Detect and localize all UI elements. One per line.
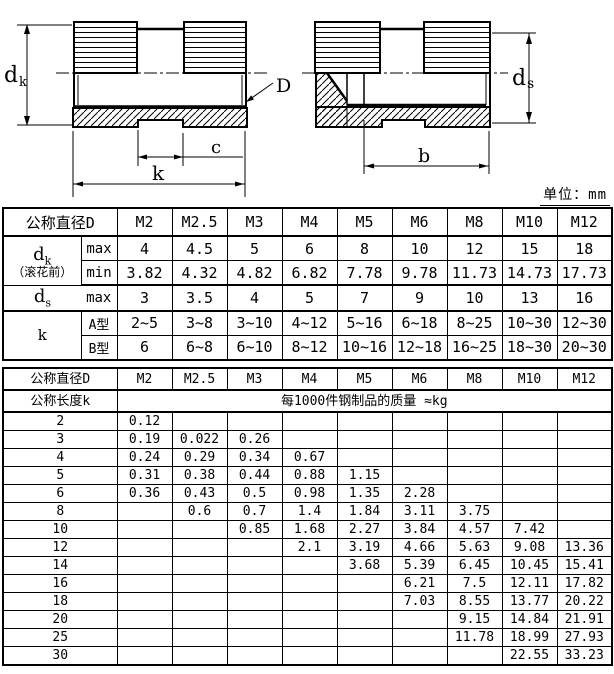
bottom-flange-hatched	[316, 107, 490, 127]
weight-value	[227, 539, 282, 557]
left-view: d k D c	[4, 22, 291, 197]
weight-value: 3.19	[337, 539, 392, 557]
header-size: M8	[447, 208, 502, 236]
weight-row: 80.60.71.41.843.113.75	[3, 503, 612, 521]
weight-row: 122.13.194.665.639.0813.36	[3, 539, 612, 557]
length-value: 4	[3, 449, 117, 467]
length-value: 10	[3, 521, 117, 539]
dk-min-value: 4.32	[172, 261, 227, 286]
weight-value	[337, 431, 392, 449]
weight-value	[557, 485, 612, 503]
weight-value	[282, 412, 337, 431]
row-label-text: dk	[33, 244, 51, 265]
weight-value: 21.91	[557, 611, 612, 629]
header-size: M2.5	[172, 208, 227, 236]
weight-value: 1.35	[337, 485, 392, 503]
thread-label: D	[276, 75, 291, 97]
weight-value	[447, 467, 502, 485]
technical-drawing: d k D c	[0, 0, 614, 205]
length-value: 5	[3, 467, 117, 485]
length-value: 8	[3, 503, 117, 521]
weight-value	[117, 557, 172, 575]
weight-value	[557, 521, 612, 539]
knurl-section	[184, 22, 246, 73]
dk-min-row: min3.824.324.826.827.789.7811.7314.7317.…	[3, 261, 612, 286]
weight-value: 5.39	[392, 557, 447, 575]
weight-value: 0.31	[117, 467, 172, 485]
weight-value	[337, 575, 392, 593]
weight-value	[227, 575, 282, 593]
dk-max-row: dk（滚花前）max44.556810121518	[3, 236, 612, 261]
header-row: 公称直径DM2M2.5M3M4M5M6M8M10M12	[3, 368, 612, 390]
dk-max-value: 10	[392, 236, 447, 261]
thread-leader	[246, 83, 273, 102]
k-a-row: kA型2~53~83~104~125~166~188~2510~3012~30	[3, 311, 612, 336]
weight-value	[392, 611, 447, 629]
weight-value	[282, 611, 337, 629]
header-size: M6	[392, 208, 447, 236]
row-label-ds: dsmax	[3, 285, 117, 311]
k-type-b-value: 16~25	[447, 335, 502, 360]
weight-value: 0.19	[117, 431, 172, 449]
k-type-b-value: 12~18	[392, 335, 447, 360]
spec-sheet-page: d k D c	[0, 0, 614, 674]
k-type-b-value: 18~30	[502, 335, 557, 360]
header-size: M2	[117, 368, 172, 390]
k-type-b-value: 20~30	[557, 335, 612, 360]
weight-value	[282, 629, 337, 647]
weight-value: 13.77	[502, 593, 557, 611]
weight-row: 3022.5533.23	[3, 647, 612, 666]
weight-value	[557, 412, 612, 431]
weight-value: 33.23	[557, 647, 612, 666]
weight-value: 14.84	[502, 611, 557, 629]
ds-label-sub: s	[527, 76, 534, 92]
header-row: 公称直径DM2M2.5M3M4M5M6M8M10M12	[3, 208, 612, 236]
row-label-note: （滚花前）	[4, 266, 81, 278]
weight-value: 10.45	[502, 557, 557, 575]
weight-value: 13.36	[557, 539, 612, 557]
weight-value	[502, 449, 557, 467]
weight-value: 7.42	[502, 521, 557, 539]
k-type-a-value: 4~12	[282, 311, 337, 336]
weight-value: 0.36	[117, 485, 172, 503]
weight-value	[172, 593, 227, 611]
weight-value	[227, 593, 282, 611]
weight-value	[227, 647, 282, 666]
ds-max-value: 10	[447, 285, 502, 311]
dk-max-value: 4	[117, 236, 172, 261]
weight-value	[337, 449, 392, 467]
header-size: M2.5	[172, 368, 227, 390]
ds-row: dsmax33.54579101316	[3, 285, 612, 311]
length-value: 18	[3, 593, 117, 611]
weight-row: 100.851.682.273.844.577.42	[3, 521, 612, 539]
k-type-a-value: 6~18	[392, 311, 447, 336]
weight-value	[337, 412, 392, 431]
knurl-section	[424, 22, 490, 73]
header-size: M10	[502, 368, 557, 390]
weight-row: 187.038.5513.7720.22	[3, 593, 612, 611]
header-size: M2	[117, 208, 172, 236]
dk-min-value: 7.78	[337, 261, 392, 286]
weight-value	[172, 557, 227, 575]
ds-label-main: d	[512, 66, 526, 91]
weight-value	[117, 575, 172, 593]
header-size: M12	[557, 368, 612, 390]
weight-value: 18.99	[502, 629, 557, 647]
weight-value	[447, 485, 502, 503]
dk-max-value: 15	[502, 236, 557, 261]
weight-value: 0.29	[172, 449, 227, 467]
weight-value	[337, 647, 392, 666]
weight-value	[172, 412, 227, 431]
length-value: 6	[3, 485, 117, 503]
knurl-section	[315, 22, 380, 73]
weight-value	[447, 647, 502, 666]
weight-value	[117, 503, 172, 521]
weight-row: 20.12	[3, 412, 612, 431]
k-type-a-value: 2~5	[117, 311, 172, 336]
weight-row: 40.240.290.340.67	[3, 449, 612, 467]
weight-value	[117, 593, 172, 611]
header-size: M6	[392, 368, 447, 390]
k-type-a-value: 5~16	[337, 311, 392, 336]
ds-label-wrap: dsmax	[4, 286, 117, 310]
weight-value: 17.82	[557, 575, 612, 593]
ds-max-value: 16	[557, 285, 612, 311]
weight-table: 公称直径DM2M2.5M3M4M5M6M8M10M12公称长度k每1000件钢制…	[2, 367, 613, 666]
dk-max-value: 4.5	[172, 236, 227, 261]
weight-value: 0.6	[172, 503, 227, 521]
bottom-flange-hatched	[73, 108, 247, 127]
weight-value: 0.24	[117, 449, 172, 467]
weight-value: 0.022	[172, 431, 227, 449]
weight-value	[337, 593, 392, 611]
length-value: 25	[3, 629, 117, 647]
header-size: M10	[502, 208, 557, 236]
weight-value: 4.66	[392, 539, 447, 557]
weight-value	[227, 611, 282, 629]
weight-value	[172, 611, 227, 629]
weight-value: 0.43	[172, 485, 227, 503]
weight-row: 166.217.512.1117.82	[3, 575, 612, 593]
dk-min-value: 17.73	[557, 261, 612, 286]
weight-value	[172, 521, 227, 539]
k-type-a-value: 3~10	[227, 311, 282, 336]
row-label-text: ds	[4, 286, 81, 310]
weight-value: 9.08	[502, 539, 557, 557]
weight-row: 143.685.396.4510.4515.41	[3, 557, 612, 575]
weight-value: 12.11	[502, 575, 557, 593]
weight-value	[117, 539, 172, 557]
weight-value	[557, 503, 612, 521]
header-size: M3	[227, 368, 282, 390]
dk-min-value: 6.82	[282, 261, 337, 286]
weight-value: 15.41	[557, 557, 612, 575]
ds-max-value: 3.5	[172, 285, 227, 311]
weight-value: 1.68	[282, 521, 337, 539]
weight-value	[337, 611, 392, 629]
weight-value	[502, 485, 557, 503]
weight-value: 11.78	[447, 629, 502, 647]
length-value: 20	[3, 611, 117, 629]
header-size: M3	[227, 208, 282, 236]
dk-label-main: d	[4, 63, 18, 88]
header-nominal-diameter: 公称直径D	[3, 208, 117, 236]
weight-value	[117, 647, 172, 666]
weight-row: 30.190.0220.26	[3, 431, 612, 449]
weight-value: 4.57	[447, 521, 502, 539]
dk-max-value: 18	[557, 236, 612, 261]
k-type-b-value: 6~10	[227, 335, 282, 360]
weight-value	[502, 503, 557, 521]
weight-value	[282, 557, 337, 575]
weight-value: 3.84	[392, 521, 447, 539]
weight-value	[282, 647, 337, 666]
weight-value	[282, 575, 337, 593]
k-type-b-value: 6~8	[172, 335, 227, 360]
weight-value	[227, 629, 282, 647]
weight-value	[172, 539, 227, 557]
dk-min-value: 14.73	[502, 261, 557, 286]
weight-value	[502, 412, 557, 431]
header-size: M8	[447, 368, 502, 390]
weight-row: 50.310.380.440.881.15	[3, 467, 612, 485]
sub-label: max	[81, 290, 117, 306]
weight-value	[392, 431, 447, 449]
k-b-row: B型66~86~108~1210~1612~1816~2518~3020~30	[3, 335, 612, 360]
weight-value	[172, 575, 227, 593]
header-size: M4	[282, 368, 337, 390]
dk-min-value: 4.82	[227, 261, 282, 286]
length-value: 12	[3, 539, 117, 557]
weight-value	[557, 431, 612, 449]
weight-row: 2511.7818.9927.93	[3, 629, 612, 647]
weight-value: 6.45	[447, 557, 502, 575]
slot-width-label: c	[211, 137, 221, 158]
weight-value: 3.75	[447, 503, 502, 521]
weight-value: 0.5	[227, 485, 282, 503]
weight-value: 0.85	[227, 521, 282, 539]
row-label-k: k	[3, 311, 81, 360]
weight-value	[447, 412, 502, 431]
length-value: 30	[3, 647, 117, 666]
dk-min-value: 11.73	[447, 261, 502, 286]
weight-value: 5.63	[447, 539, 502, 557]
weight-value	[282, 593, 337, 611]
k-type-b-value: 8~12	[282, 335, 337, 360]
k-type-a-value: 3~8	[172, 311, 227, 336]
weight-value: 9.15	[447, 611, 502, 629]
dk-label-sub: k	[19, 75, 27, 90]
dk-min-value: 3.82	[117, 261, 172, 286]
header-nominal-length: 公称长度k	[3, 390, 117, 412]
weight-value	[392, 467, 447, 485]
weight-value	[447, 431, 502, 449]
weight-value	[117, 521, 172, 539]
weight-value	[117, 611, 172, 629]
weight-row: 60.360.430.50.981.352.28	[3, 485, 612, 503]
type-b-label: B型	[81, 335, 117, 360]
weight-value: 8.55	[447, 593, 502, 611]
weight-value: 22.55	[502, 647, 557, 666]
dk-max-value: 5	[227, 236, 282, 261]
weight-value: 20.22	[557, 593, 612, 611]
k-type-a-value: 10~30	[502, 311, 557, 336]
sub-label: min	[81, 261, 117, 286]
weight-value	[392, 647, 447, 666]
weight-value	[557, 467, 612, 485]
weight-value	[447, 449, 502, 467]
dk-max-value: 6	[282, 236, 337, 261]
weight-value	[117, 629, 172, 647]
weight-value	[392, 629, 447, 647]
weight-value: 0.26	[227, 431, 282, 449]
sub-label: max	[81, 236, 117, 261]
header-nominal-diameter: 公称直径D	[3, 368, 117, 390]
header-size: M5	[337, 368, 392, 390]
weight-value	[392, 412, 447, 431]
ds-max-value: 13	[502, 285, 557, 311]
length-value: 2	[3, 412, 117, 431]
k-type-b-value: 6	[117, 335, 172, 360]
weight-value: 0.12	[117, 412, 172, 431]
subheader-row: 公称长度k每1000件钢制品的质量 ≈kg	[3, 390, 612, 412]
row-label-dk: dk（滚花前）	[3, 236, 81, 285]
weight-value: 6.21	[392, 575, 447, 593]
weight-value	[227, 412, 282, 431]
weight-value	[392, 449, 447, 467]
weight-value: 7.5	[447, 575, 502, 593]
weight-value	[557, 449, 612, 467]
dk-max-value: 12	[447, 236, 502, 261]
dk-min-value: 9.78	[392, 261, 447, 286]
dk-max-value: 8	[337, 236, 392, 261]
ds-max-value: 3	[117, 285, 172, 311]
ds-max-value: 9	[392, 285, 447, 311]
weight-value	[337, 629, 392, 647]
weight-value: 2.28	[392, 485, 447, 503]
knurl-section	[74, 22, 137, 73]
weight-value: 0.67	[282, 449, 337, 467]
weight-value	[502, 431, 557, 449]
weight-value: 3.68	[337, 557, 392, 575]
weight-value: 3.11	[392, 503, 447, 521]
thread-length-label: b	[418, 145, 430, 167]
weight-value: 2.27	[337, 521, 392, 539]
weight-value: 1.84	[337, 503, 392, 521]
ds-max-value: 5	[282, 285, 337, 311]
dimensions-table: 公称直径DM2M2.5M3M4M5M6M8M10M12dk（滚花前）max44.…	[2, 207, 613, 361]
length-label: k	[152, 161, 165, 185]
length-value: 16	[3, 575, 117, 593]
weight-value	[282, 431, 337, 449]
k-type-a-value: 12~30	[557, 311, 612, 336]
weight-value: 27.93	[557, 629, 612, 647]
weight-value: 0.98	[282, 485, 337, 503]
weight-value	[172, 647, 227, 666]
k-type-b-value: 10~16	[337, 335, 392, 360]
ds-max-value: 7	[337, 285, 392, 311]
weight-value: 0.44	[227, 467, 282, 485]
ds-max-value: 4	[227, 285, 282, 311]
k-type-a-value: 8~25	[447, 311, 502, 336]
header-size: M12	[557, 208, 612, 236]
header-size: M5	[337, 208, 392, 236]
type-a-label: A型	[81, 311, 117, 336]
weight-value: 0.38	[172, 467, 227, 485]
unit-note: 单位：mm	[540, 184, 610, 206]
weight-value: 1.4	[282, 503, 337, 521]
weight-value	[227, 557, 282, 575]
length-value: 14	[3, 557, 117, 575]
weight-value: 7.03	[392, 593, 447, 611]
header-weight-note: 每1000件钢制品的质量 ≈kg	[117, 390, 612, 412]
weight-value: 2.1	[282, 539, 337, 557]
weight-value: 1.15	[337, 467, 392, 485]
weight-value: 0.88	[282, 467, 337, 485]
right-view: d s b	[302, 22, 536, 174]
weight-value: 0.34	[227, 449, 282, 467]
weight-value: 0.7	[227, 503, 282, 521]
weight-value	[172, 629, 227, 647]
weight-row: 209.1514.8421.91	[3, 611, 612, 629]
length-value: 3	[3, 431, 117, 449]
weight-value	[502, 467, 557, 485]
header-size: M4	[282, 208, 337, 236]
